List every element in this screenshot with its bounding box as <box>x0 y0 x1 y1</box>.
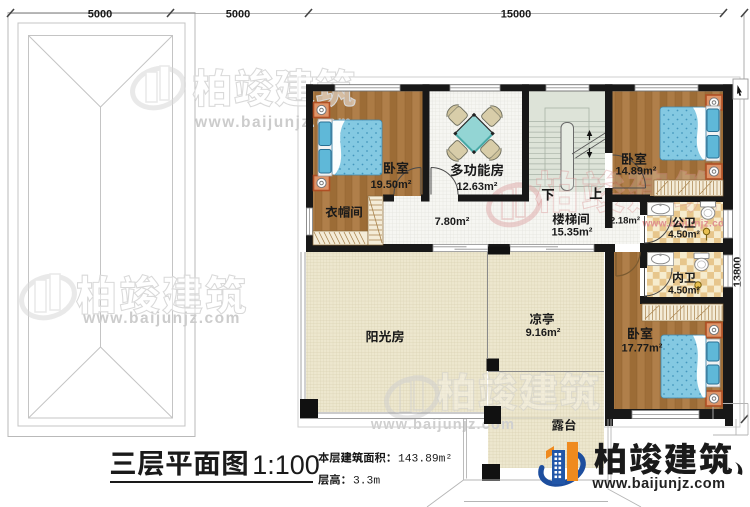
svg-text:9.16m²: 9.16m² <box>526 327 561 339</box>
svg-text:12.63m²: 12.63m² <box>457 181 498 193</box>
svg-text:2.18m²: 2.18m² <box>610 216 640 227</box>
svg-text:15000: 15000 <box>501 9 532 21</box>
svg-text:4.50m²: 4.50m² <box>668 286 700 297</box>
svg-text:13800: 13800 <box>732 257 744 288</box>
svg-text:7.80m²: 7.80m² <box>435 216 470 228</box>
svg-text:www.baijunjz.com: www.baijunjz.com <box>641 219 733 230</box>
svg-text:www.baijunjz.com: www.baijunjz.com <box>82 310 241 327</box>
svg-text:5000: 5000 <box>88 9 112 21</box>
svg-text:3.3m: 3.3m <box>353 476 380 488</box>
svg-text:1:100: 1:100 <box>252 450 320 480</box>
svg-text:5000: 5000 <box>226 9 250 21</box>
svg-text:15.35m²: 15.35m² <box>552 227 593 239</box>
svg-text:17.77m²: 17.77m² <box>622 343 663 355</box>
svg-text:www.baijunjz.com: www.baijunjz.com <box>591 476 725 492</box>
svg-text:19.50m²: 19.50m² <box>371 179 412 191</box>
svg-text:4.50m²: 4.50m² <box>668 230 700 241</box>
svg-text:14.89m²: 14.89m² <box>616 166 657 178</box>
svg-text:143.89m²: 143.89m² <box>398 454 452 466</box>
